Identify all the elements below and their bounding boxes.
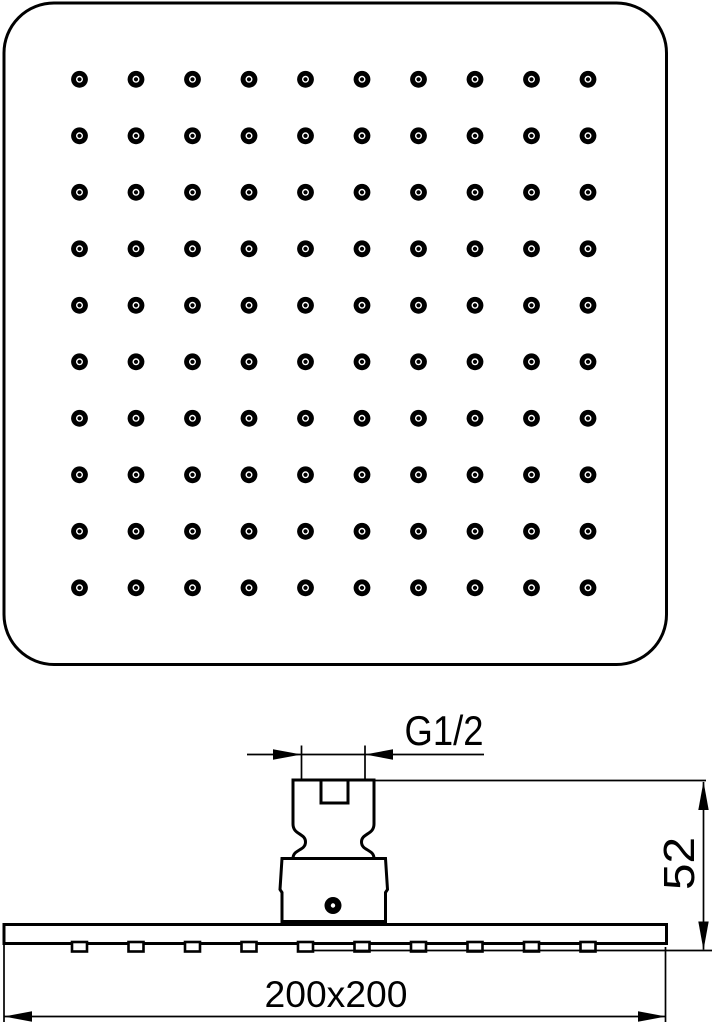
nozzle (297, 466, 314, 483)
pivot-screw (325, 897, 342, 914)
thread-arrow-left-icon (273, 749, 302, 759)
nozzle (580, 240, 597, 257)
nozzle (71, 297, 88, 314)
nozzle (580, 297, 597, 314)
nozzle (297, 127, 314, 144)
nozzle (241, 184, 258, 201)
nozzle (523, 410, 540, 427)
thread-notch (321, 780, 348, 803)
nozzle (580, 127, 597, 144)
nozzle (71, 410, 88, 427)
nozzle (523, 184, 540, 201)
nozzle (128, 410, 145, 427)
nozzle (467, 127, 484, 144)
nozzle (128, 353, 145, 370)
nozzle (128, 523, 145, 540)
footprint-arrow-left-icon (4, 1011, 32, 1021)
nozzle (467, 523, 484, 540)
nozzle (410, 353, 427, 370)
nozzle (410, 71, 427, 88)
nozzle (297, 523, 314, 540)
nozzle (354, 240, 371, 257)
dimension-thread: G1/2 (247, 707, 484, 779)
nozzle (184, 184, 201, 201)
nozzle (71, 71, 88, 88)
dimension-footprint: 200x200 (4, 944, 666, 1022)
footprint-arrow-right-icon (638, 1011, 666, 1021)
nozzle (523, 523, 540, 540)
nozzle (71, 466, 88, 483)
nozzle (241, 127, 258, 144)
nozzle (580, 184, 597, 201)
nozzle (71, 240, 88, 257)
nozzle (128, 127, 145, 144)
nozzle (580, 410, 597, 427)
nozzle (71, 579, 88, 596)
nozzle (410, 240, 427, 257)
plate-side-profile (4, 925, 667, 944)
nozzle-stub (185, 942, 200, 952)
height-arrow-down-icon (698, 922, 708, 951)
nozzle (523, 579, 540, 596)
nozzle (297, 353, 314, 370)
height-arrow-up-icon (698, 782, 708, 811)
shower-plate-face (4, 3, 667, 665)
nozzle (410, 466, 427, 483)
nozzle (580, 466, 597, 483)
nozzle (184, 297, 201, 314)
nozzle (128, 297, 145, 314)
nozzle (580, 71, 597, 88)
nozzle (241, 297, 258, 314)
nozzle-stub (242, 942, 257, 952)
nozzle (128, 579, 145, 596)
nozzle (184, 127, 201, 144)
nozzle (523, 466, 540, 483)
nozzle (297, 297, 314, 314)
nozzle (297, 184, 314, 201)
nozzle (580, 523, 597, 540)
nozzle (184, 579, 201, 596)
nozzle (241, 523, 258, 540)
nozzle (354, 71, 371, 88)
nozzle (128, 466, 145, 483)
nozzle (410, 410, 427, 427)
nozzle (410, 127, 427, 144)
nozzle (297, 71, 314, 88)
nozzle (580, 579, 597, 596)
nozzle (71, 353, 88, 370)
nozzle-stub (72, 942, 87, 952)
nozzle (523, 127, 540, 144)
nozzle (354, 353, 371, 370)
thread-dimension-label: G1/2 (405, 707, 484, 754)
nozzle (184, 71, 201, 88)
nozzle (410, 297, 427, 314)
nozzle (580, 353, 597, 370)
side-view (4, 780, 667, 952)
nozzle (128, 71, 145, 88)
nozzle (467, 240, 484, 257)
nozzle (297, 579, 314, 596)
nozzle (467, 353, 484, 370)
nozzle (523, 71, 540, 88)
nozzle (241, 466, 258, 483)
height-dimension-label: 52 (655, 837, 704, 890)
nozzle (410, 184, 427, 201)
nozzle (241, 71, 258, 88)
nozzle (297, 410, 314, 427)
nozzle (71, 523, 88, 540)
nozzle (467, 297, 484, 314)
nozzle (184, 353, 201, 370)
nozzle (128, 184, 145, 201)
nozzle (71, 127, 88, 144)
technical-drawing-canvas: G1/2 52 200x200 (0, 0, 712, 1024)
nozzle (241, 579, 258, 596)
nozzle (241, 353, 258, 370)
nozzle (467, 71, 484, 88)
nozzle (184, 466, 201, 483)
nozzle (354, 184, 371, 201)
nozzle (241, 410, 258, 427)
nozzle (71, 184, 88, 201)
nozzle (354, 127, 371, 144)
top-view (4, 3, 667, 665)
nozzle (241, 240, 258, 257)
nozzle-stub (129, 942, 144, 952)
thread-arrow-right-icon (365, 749, 393, 759)
nozzle (354, 410, 371, 427)
nozzle (410, 523, 427, 540)
nozzle (128, 240, 145, 257)
nozzle (354, 466, 371, 483)
nozzle (354, 579, 371, 596)
footprint-dimension-label: 200x200 (265, 974, 408, 1015)
nozzle (297, 240, 314, 257)
nozzle (184, 240, 201, 257)
nozzle (523, 353, 540, 370)
nozzle (523, 240, 540, 257)
nozzle (467, 184, 484, 201)
nozzle (354, 297, 371, 314)
nozzle (467, 466, 484, 483)
nozzle (467, 410, 484, 427)
shower-head-drawing: G1/2 52 200x200 (0, 0, 712, 1024)
nozzle (410, 579, 427, 596)
nozzle (354, 523, 371, 540)
nozzle (184, 523, 201, 540)
nozzle (184, 410, 201, 427)
nozzle (523, 297, 540, 314)
nozzle-stub (298, 942, 313, 952)
nozzle (467, 579, 484, 596)
